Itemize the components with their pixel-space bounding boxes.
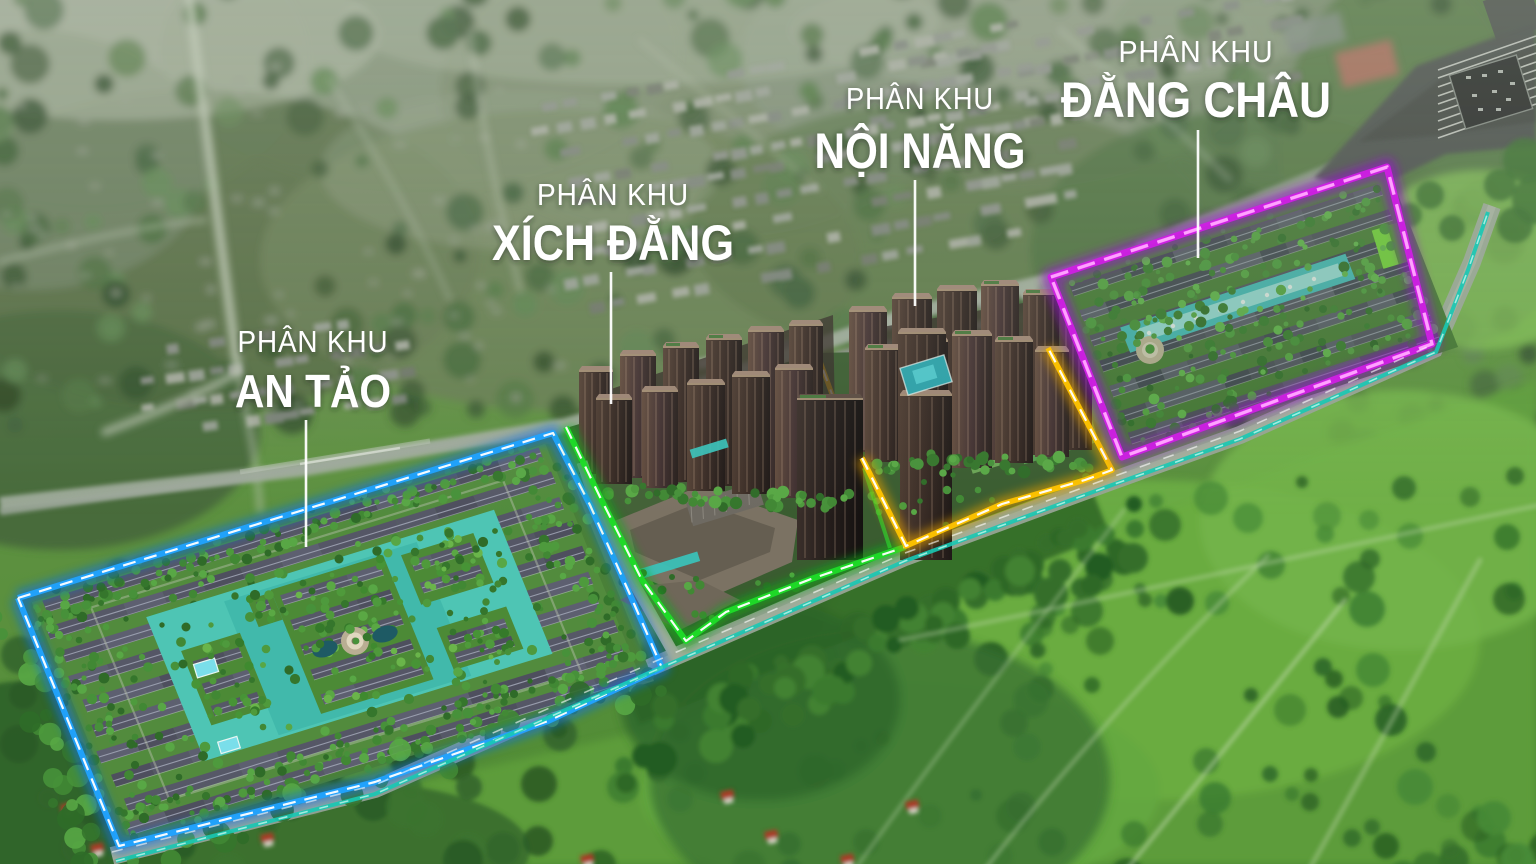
svg-text:ĐẰNG CHÂU: ĐẰNG CHÂU xyxy=(1061,72,1331,128)
svg-text:PHÂN KHU: PHÂN KHU xyxy=(238,324,389,359)
svg-text:XÍCH ĐẰNG: XÍCH ĐẰNG xyxy=(492,215,734,271)
svg-text:PHÂN KHU: PHÂN KHU xyxy=(537,177,689,212)
svg-text:PHÂN KHU: PHÂN KHU xyxy=(1119,34,1274,69)
svg-text:PHÂN KHU: PHÂN KHU xyxy=(846,81,994,116)
svg-text:AN TẢO: AN TẢO xyxy=(235,365,391,417)
svg-text:NỘI NĂNG: NỘI NĂNG xyxy=(815,122,1026,179)
